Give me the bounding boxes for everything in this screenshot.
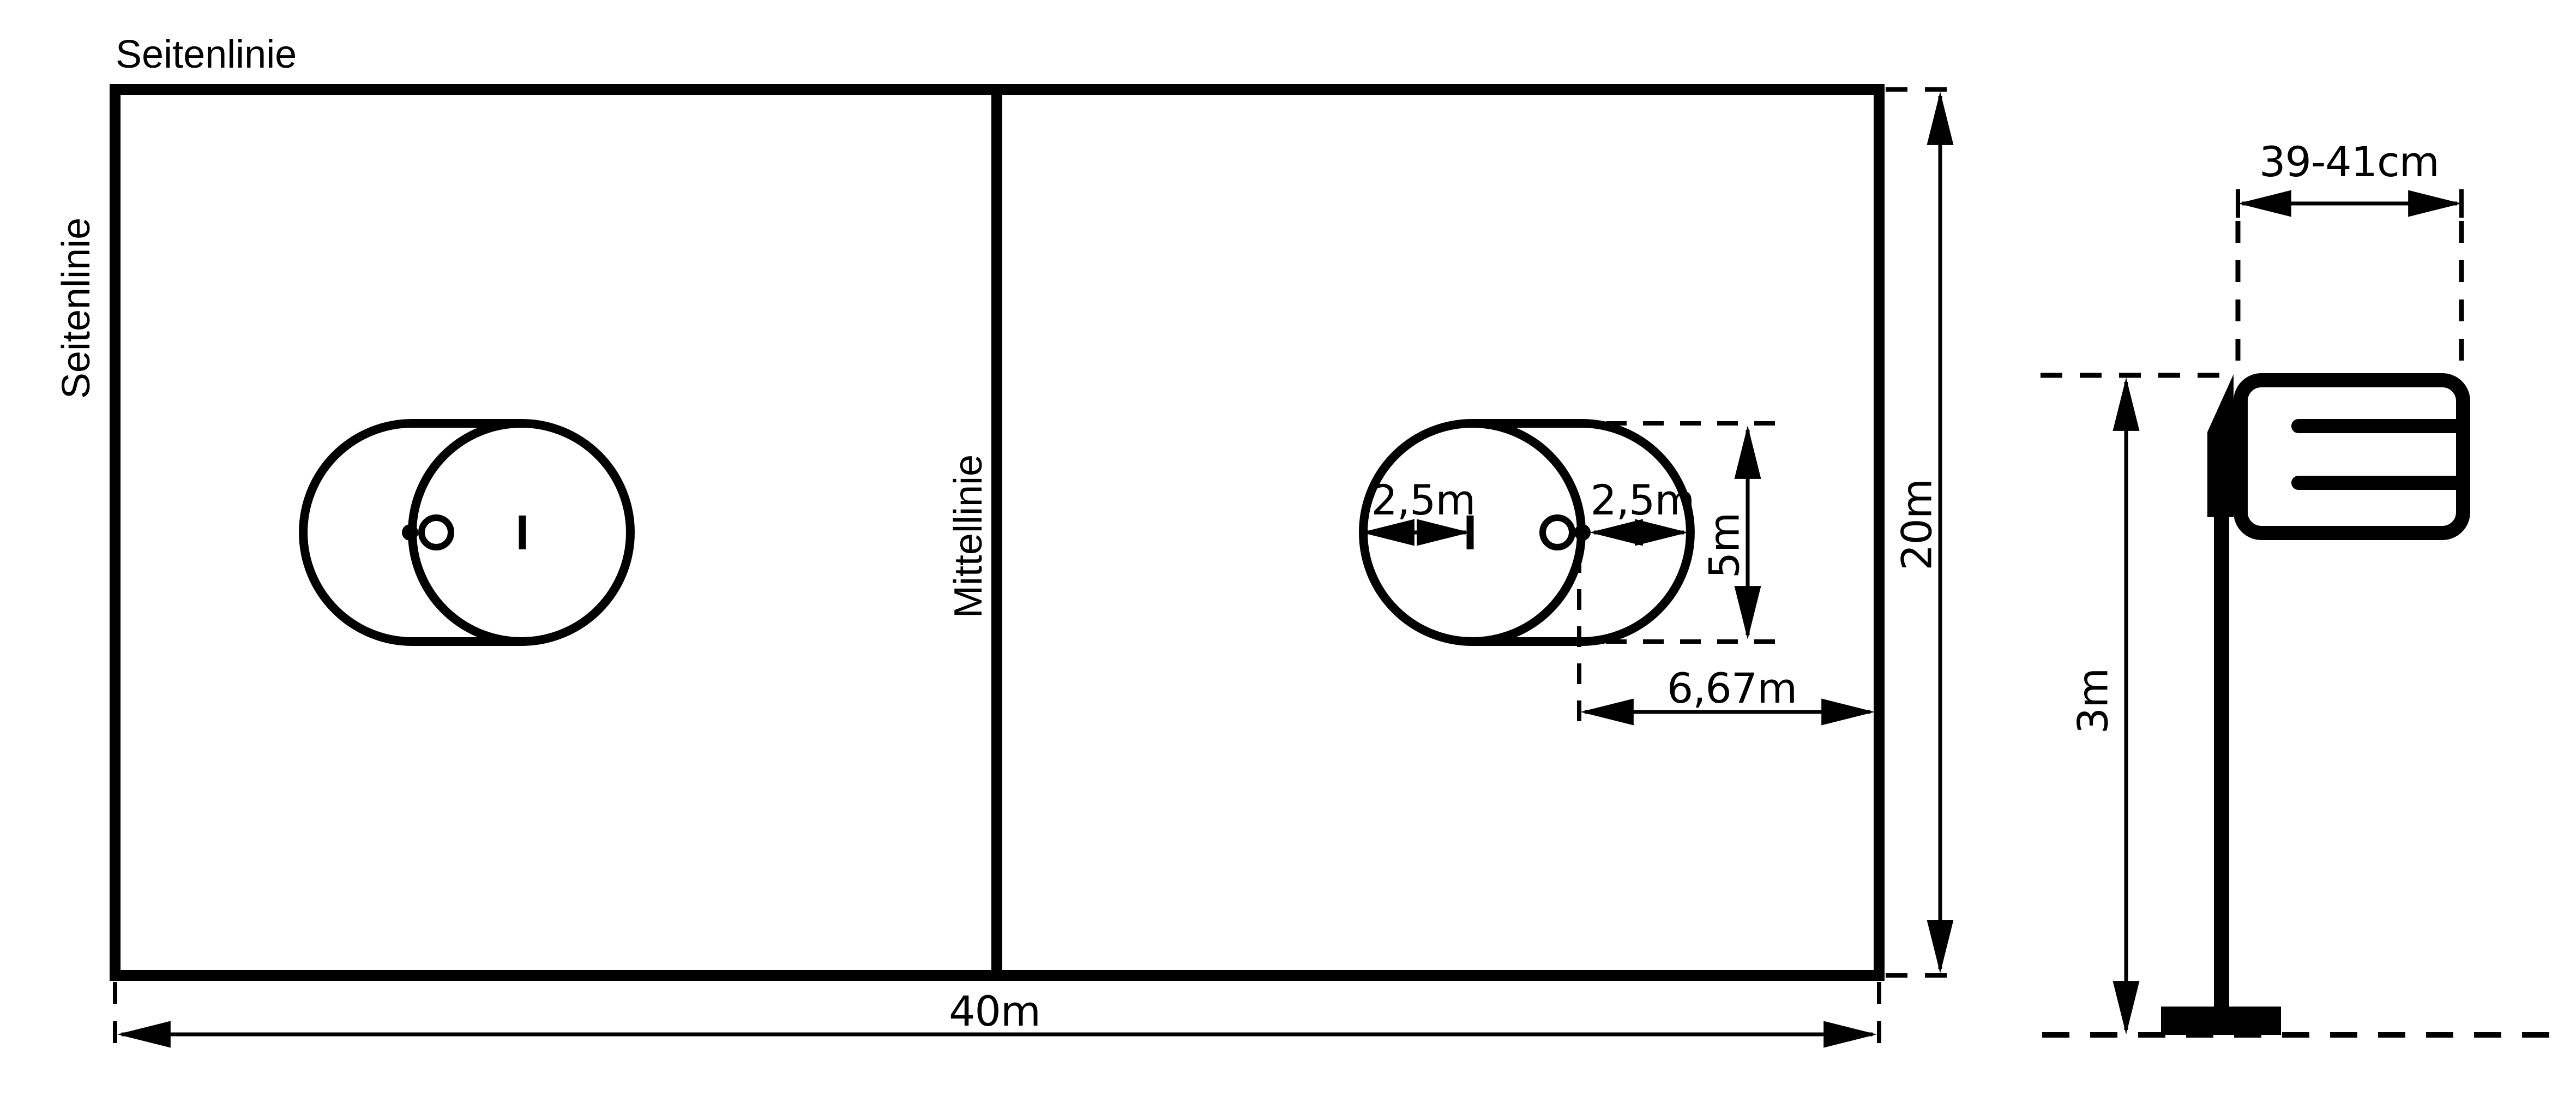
dim-label-end-radius: 2,5m — [1591, 476, 1695, 524]
dim-label-667m: 6,67m — [1667, 664, 1797, 712]
basket-body — [2241, 380, 2463, 533]
dim-label-3m: 3m — [2069, 668, 2117, 734]
basket-ring-left — [422, 518, 451, 547]
basket-post-elevation: 39-41cm 3m — [2041, 137, 2560, 1035]
basket-bracket — [2207, 374, 2234, 517]
sideline-label-top: Seitenlinie — [116, 33, 297, 76]
post-base — [2161, 1007, 2281, 1035]
dim-label-5m: 5m — [1700, 513, 1749, 578]
post-pole — [2214, 516, 2229, 1007]
target-zone-left — [303, 423, 630, 642]
dim-label-basket-width: 39-41cm — [2259, 137, 2439, 186]
post-dot-right — [1574, 524, 1591, 541]
diagram-canvas: Seitenlinie Seitenlinie Mittellinie 2,5m… — [0, 0, 2576, 1108]
basket-ring-right — [1543, 518, 1572, 547]
dim-label-20m: 20m — [1893, 479, 1941, 571]
center-line-label: Mittellinie — [947, 454, 990, 618]
dim-label-circle-radius: 2,5m — [1371, 476, 1476, 524]
post-dot-left — [402, 524, 418, 541]
dim-label-40m: 40m — [949, 987, 1040, 1035]
sideline-label-left: Seitenlinie — [55, 218, 98, 399]
zone-dimensions: 2,5m 2,5m 5m 6,67m — [1365, 423, 1870, 727]
korbball-field-diagram: Seitenlinie Seitenlinie Mittellinie 2,5m… — [0, 0, 2576, 1108]
